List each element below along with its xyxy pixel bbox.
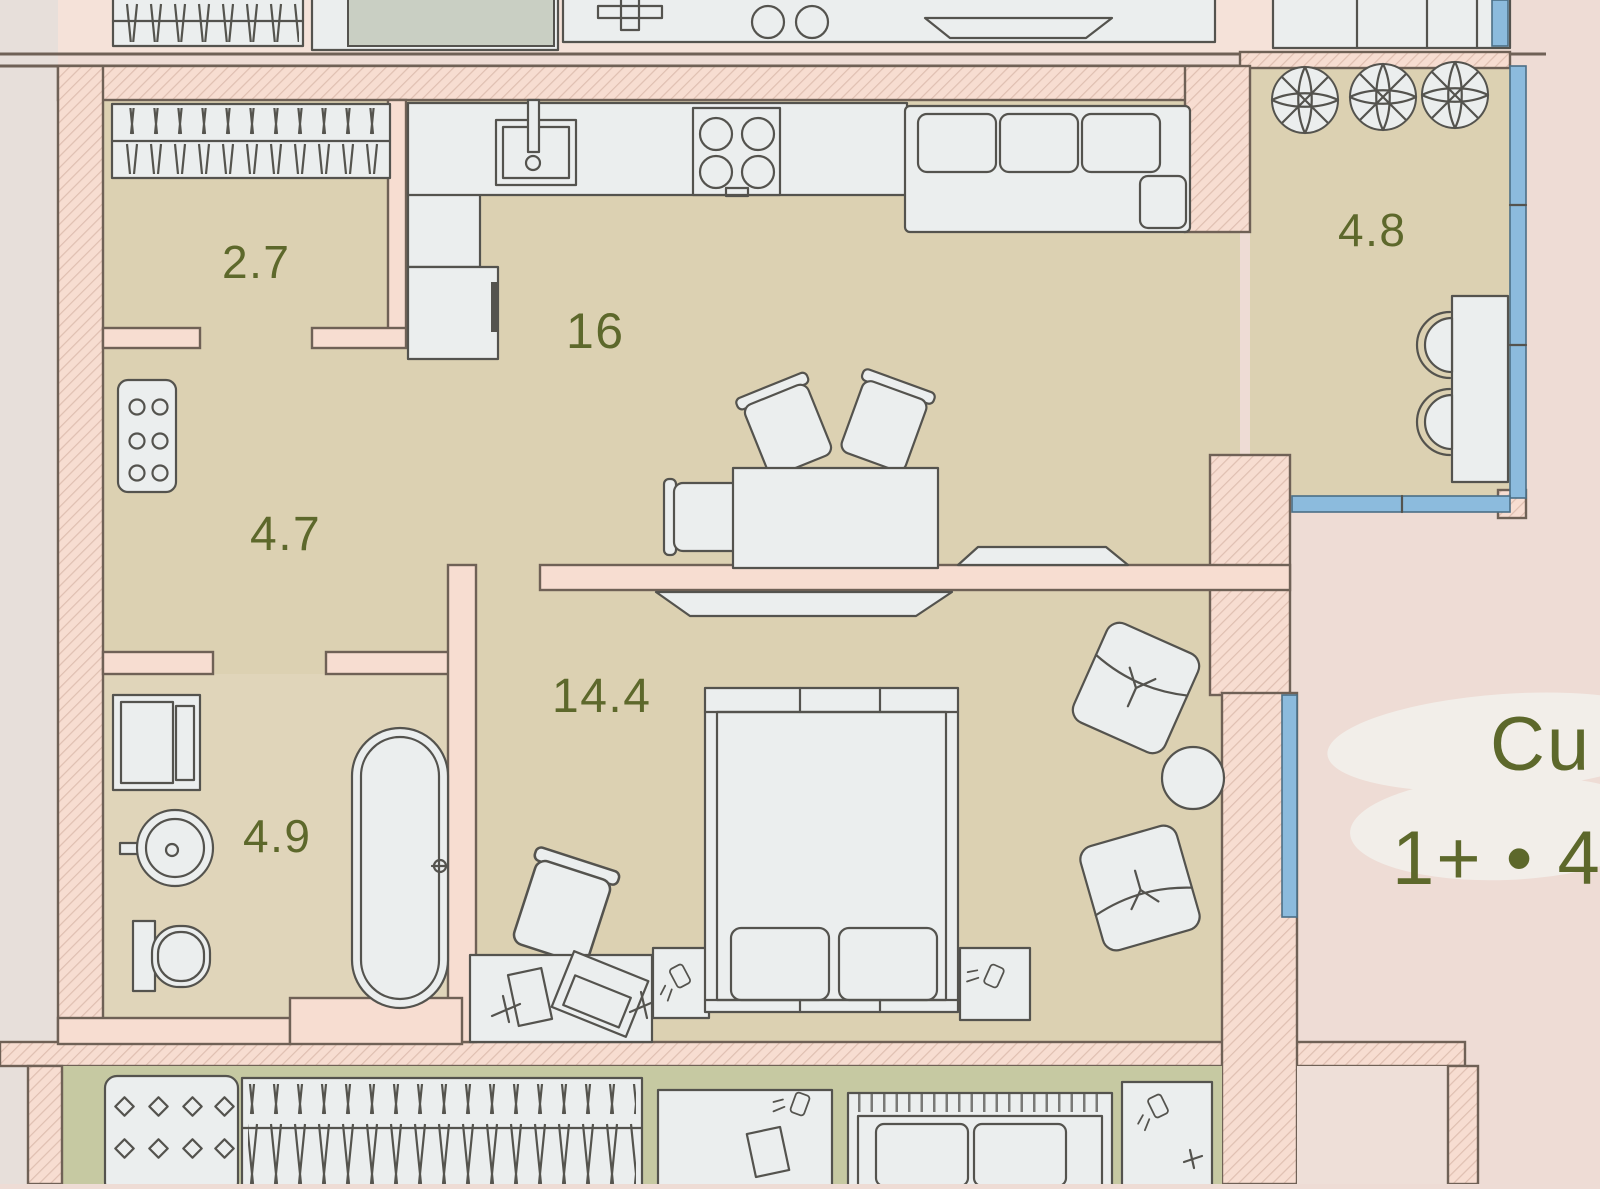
window-bedroom-right [1282, 695, 1297, 917]
wall-living-right [1185, 66, 1250, 232]
lower-desk [658, 1085, 832, 1184]
hallway [118, 380, 176, 492]
annotation-line1: Cu [1490, 702, 1591, 787]
wall-bathroom-bottom-step [290, 998, 462, 1044]
lower-neighbor-room-floor [1297, 1066, 1448, 1184]
upper-balcony [1273, 0, 1510, 48]
washing-machine [113, 695, 200, 790]
floor-plan-svg: 2.7 16 4.8 4.7 4.9 14.4 Cu 1+ • 4 [0, 0, 1600, 1184]
lower-nightstand [1122, 1082, 1212, 1184]
plant-icon [1350, 64, 1416, 130]
nightstand-right [960, 948, 1030, 1020]
stove [693, 108, 780, 196]
wardrobe-hanger-rail [112, 104, 390, 178]
lower-wall-right [1448, 1066, 1478, 1184]
shoe-cabinet [118, 380, 176, 492]
upper-window [1492, 0, 1508, 46]
nightstand-left [653, 948, 709, 1018]
wardrobe-room [112, 104, 390, 178]
tv-icon [656, 592, 952, 616]
label-hallway-area: 4.7 [250, 508, 321, 561]
label-balcony-area: 4.8 [1338, 204, 1406, 256]
upper-wardrobe [113, 0, 303, 46]
toilet [133, 921, 210, 991]
label-bathroom-area: 4.9 [243, 810, 311, 862]
upper-unit [58, 0, 1510, 54]
wall-bathroom-bottom [58, 1018, 290, 1044]
upper-bed [312, 0, 558, 50]
lower-wardrobe [242, 1078, 642, 1184]
plant-icon [1422, 62, 1488, 128]
wall-wardrobe-bottom-right [312, 328, 406, 348]
bed [705, 688, 958, 1012]
wall-bathroom-top-left [103, 652, 213, 674]
bar-table [1452, 296, 1508, 482]
pillow [876, 1124, 968, 1184]
wall-left [58, 66, 103, 1042]
bathtub [352, 728, 448, 1008]
lower-bed [848, 1093, 1112, 1184]
wall-bathroom-top-right [326, 652, 462, 674]
wall-wardrobe-bottom-left [103, 328, 200, 348]
plant-icon [1272, 67, 1338, 133]
wall-top [58, 66, 1240, 100]
kitchen-counter-top [408, 103, 907, 195]
lower-wall-left [28, 1066, 62, 1184]
window-balcony-right [1510, 66, 1526, 498]
annotation-line2: 1+ • 4 [1392, 816, 1600, 901]
lower-shoe-cabinet [105, 1076, 238, 1184]
upper-kitchen-counter [563, 0, 1215, 42]
pillow [731, 928, 829, 1000]
pillow [839, 928, 937, 1000]
dining-table [733, 468, 938, 568]
fridge [408, 267, 499, 359]
side-table [1162, 747, 1224, 809]
label-wardrobe-area: 2.7 [222, 236, 290, 288]
sofa [905, 106, 1190, 232]
console-shelf-icon [958, 547, 1128, 565]
label-kitchen-living-area: 16 [566, 303, 625, 359]
upper-table-plate-icon [925, 18, 1112, 38]
pillow [974, 1124, 1066, 1184]
label-bedroom-area: 14.4 [552, 670, 651, 723]
page-edge-strip [0, 0, 58, 1184]
